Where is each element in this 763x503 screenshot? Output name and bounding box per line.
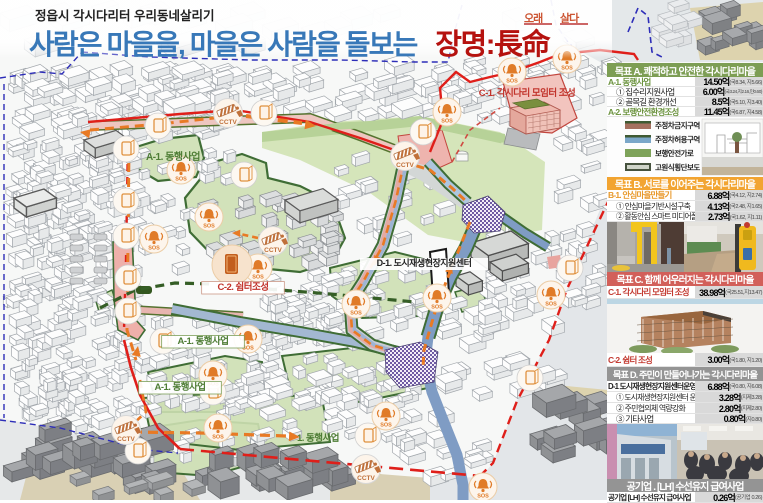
svg-text:SOS: SOS	[148, 246, 160, 252]
svg-text:SOS: SOS	[506, 79, 518, 85]
svg-text:CCTV: CCTV	[219, 119, 237, 126]
svg-text:SOS: SOS	[175, 177, 187, 183]
svg-text:보행안전가로: 보행안전가로	[655, 148, 694, 158]
svg-text:SOS: SOS	[431, 305, 443, 311]
svg-text:1. 동행사업: 1. 동행사업	[297, 432, 339, 444]
svg-text:주정차금지구역: 주정차금지구역	[655, 120, 700, 130]
svg-text:SOS: SOS	[203, 224, 215, 230]
svg-text:SOS: SOS	[350, 311, 362, 317]
svg-text:D-1. 도시재생현장지원센터: D-1. 도시재생현장지원센터	[377, 257, 472, 268]
svg-text:SOS: SOS	[441, 119, 453, 125]
svg-text:C-2. 쉼터조성: C-2. 쉼터조성	[217, 281, 268, 293]
svg-text:A-1. 동행사업: A-1. 동행사업	[177, 335, 228, 347]
svg-text:CCTV: CCTV	[117, 436, 135, 443]
svg-text:A-1. 동행사업: A-1. 동행사업	[154, 381, 205, 393]
svg-text:SOS: SOS	[212, 435, 224, 441]
svg-text:A-1. 동행사업: A-1. 동행사업	[146, 150, 200, 163]
svg-text:SOS: SOS	[545, 302, 557, 308]
svg-text:CCTV: CCTV	[264, 247, 282, 254]
svg-text:CCTV: CCTV	[357, 475, 375, 482]
svg-text:SOS: SOS	[477, 494, 489, 500]
svg-text:SOS: SOS	[252, 275, 264, 281]
svg-text:고원식횡단보도: 고원식횡단보도	[655, 162, 700, 172]
svg-text:CCTV: CCTV	[396, 162, 414, 169]
svg-text:주정차허용구역: 주정차허용구역	[655, 134, 700, 144]
svg-text:C-1. 각시다리 모임터 조성: C-1. 각시다리 모임터 조성	[479, 87, 576, 99]
svg-text:SOS: SOS	[561, 66, 573, 72]
svg-text:SOS: SOS	[380, 423, 392, 429]
